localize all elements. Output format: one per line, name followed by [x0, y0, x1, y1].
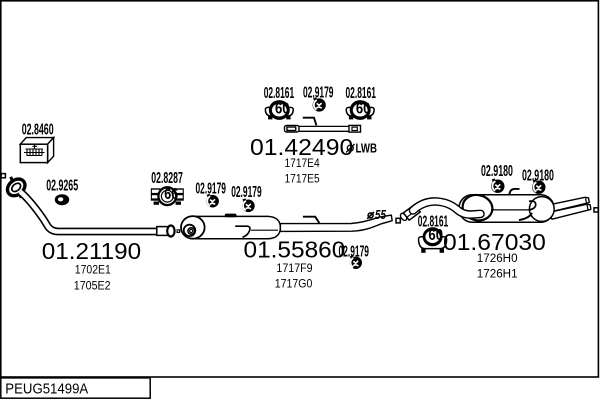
svg-text:1717E4: 1717E4 — [285, 157, 320, 170]
svg-text:1726H0: 1726H0 — [477, 251, 518, 265]
svg-text:LWB: LWB — [356, 141, 377, 156]
svg-text:1702E1: 1702E1 — [75, 264, 111, 277]
svg-text:02.8287: 02.8287 — [151, 168, 183, 187]
svg-text:02.9180: 02.9180 — [481, 161, 513, 180]
svg-text:02.9179: 02.9179 — [339, 241, 369, 260]
svg-text:01.55860: 01.55860 — [244, 237, 346, 263]
svg-text:55: 55 — [375, 209, 387, 222]
svg-text:1717F9: 1717F9 — [276, 262, 312, 275]
svg-text:01.21190: 01.21190 — [42, 238, 141, 265]
svg-text:02.8460: 02.8460 — [22, 120, 54, 139]
svg-text:60: 60 — [356, 100, 371, 117]
svg-text:02.8161: 02.8161 — [418, 211, 448, 230]
svg-text:02.9179: 02.9179 — [303, 82, 333, 101]
svg-text:02.8161: 02.8161 — [346, 83, 376, 102]
svg-text:1705E2: 1705E2 — [74, 280, 111, 293]
svg-text:02.9179: 02.9179 — [231, 182, 261, 201]
svg-text:02.9265: 02.9265 — [46, 176, 78, 195]
svg-text:60: 60 — [275, 100, 290, 117]
svg-text:1717G0: 1717G0 — [275, 278, 313, 291]
svg-text:1717E5: 1717E5 — [285, 173, 320, 186]
svg-text:1726H1: 1726H1 — [477, 266, 518, 280]
svg-text:PEUG51499A: PEUG51499A — [5, 380, 89, 397]
svg-text:02.8161: 02.8161 — [264, 83, 294, 102]
svg-text:02.9179: 02.9179 — [196, 179, 226, 198]
svg-text:02.9180: 02.9180 — [522, 166, 554, 185]
svg-text:66: 66 — [164, 186, 178, 204]
